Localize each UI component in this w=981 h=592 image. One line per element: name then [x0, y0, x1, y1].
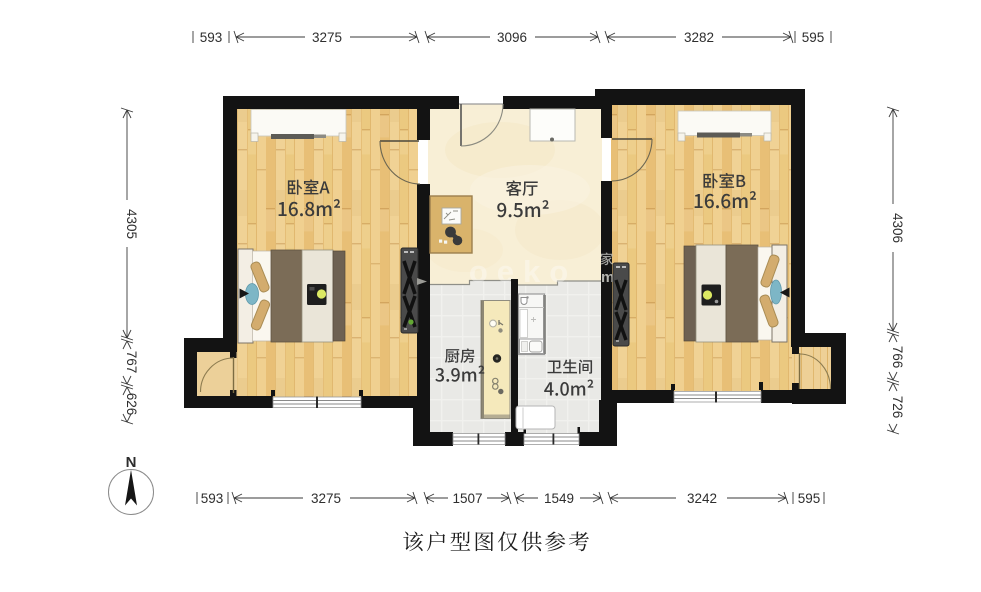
svg-text:593: 593 [200, 30, 223, 45]
svg-text:oeko: oeko [469, 254, 577, 289]
svg-text:4305: 4305 [124, 209, 139, 239]
svg-text:1507: 1507 [452, 491, 482, 506]
svg-text:626: 626 [124, 393, 139, 416]
svg-text:3096: 3096 [497, 30, 527, 45]
svg-text:726: 726 [890, 396, 905, 419]
svg-text:595: 595 [802, 30, 825, 45]
svg-text:593: 593 [201, 491, 224, 506]
svg-text:N: N [126, 454, 137, 471]
svg-text:766: 766 [890, 346, 905, 369]
svg-text:3282: 3282 [684, 30, 714, 45]
svg-text:595: 595 [798, 491, 821, 506]
svg-text:1549: 1549 [544, 491, 574, 506]
svg-text:3275: 3275 [312, 30, 342, 45]
svg-text:3275: 3275 [311, 491, 341, 506]
svg-text:3242: 3242 [687, 491, 717, 506]
svg-text:767: 767 [124, 351, 139, 374]
svg-text:4306: 4306 [890, 213, 905, 243]
